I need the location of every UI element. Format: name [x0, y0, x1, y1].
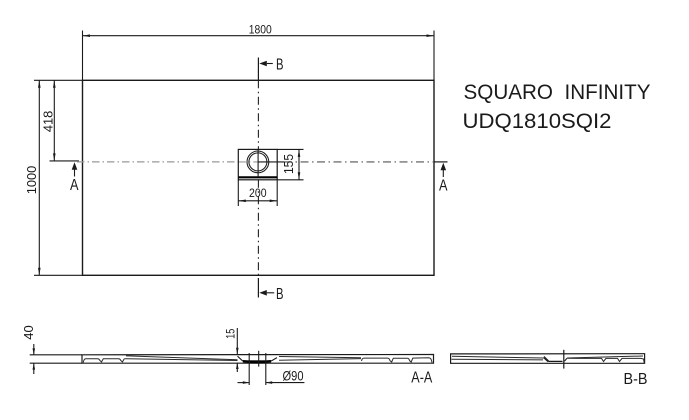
svg-text:Ø90: Ø90 [283, 368, 304, 384]
svg-text:155: 155 [281, 154, 296, 174]
svg-text:A: A [70, 177, 79, 194]
svg-text:1800: 1800 [249, 23, 272, 37]
svg-text:40: 40 [21, 325, 36, 339]
svg-text:B: B [276, 286, 284, 303]
svg-text:B-B: B-B [624, 371, 648, 388]
svg-text:15: 15 [224, 329, 238, 339]
svg-text:200: 200 [249, 186, 267, 200]
svg-text:B: B [276, 57, 284, 74]
svg-text:A: A [439, 178, 448, 195]
svg-text:SQUARO INFINITY: SQUARO INFINITY [464, 80, 651, 104]
svg-text:418: 418 [40, 111, 55, 132]
svg-text:A-A: A-A [411, 370, 433, 387]
svg-text:UDQ1810SQI2: UDQ1810SQI2 [463, 109, 612, 133]
svg-text:1000: 1000 [24, 166, 39, 195]
